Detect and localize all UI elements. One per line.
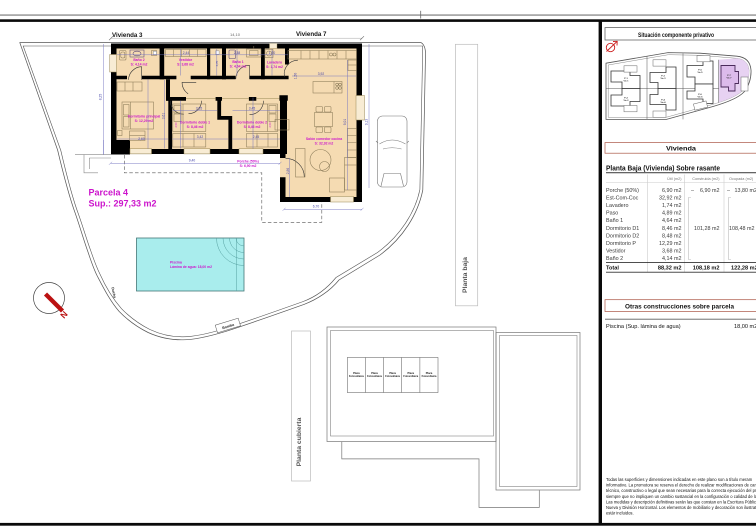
svg-text:Ducha: Ducha — [111, 287, 117, 300]
svg-text:Construida (m2): Construida (m2) — [692, 177, 720, 181]
svg-text:2,38: 2,38 — [234, 51, 241, 55]
svg-text:Viv 4: Viv 4 — [660, 101, 666, 104]
svg-text:– 13,80 m2: – 13,80 m2 — [727, 188, 756, 194]
svg-text:Porche (50%): Porche (50%) — [606, 188, 639, 194]
svg-text:3,42: 3,42 — [197, 135, 204, 139]
svg-text:Planta baja: Planta baja — [462, 257, 469, 293]
svg-text:4,64 m2: 4,64 m2 — [662, 218, 681, 224]
svg-text:S: 3,68 m2: S: 3,68 m2 — [177, 63, 194, 67]
svg-text:2,45: 2,45 — [253, 135, 260, 139]
svg-text:S: 12,29 m2: S: 12,29 m2 — [135, 119, 154, 123]
svg-text:14,10: 14,10 — [230, 32, 241, 37]
svg-text:9,01: 9,01 — [343, 119, 347, 126]
svg-text:Vivienda 7: Vivienda 7 — [296, 31, 327, 38]
svg-text:Vestidor: Vestidor — [179, 58, 193, 62]
svg-text:Viv 1: Viv 1 — [623, 81, 629, 83]
svg-text:Dormitorio D2: Dormitorio D2 — [606, 233, 639, 239]
svg-text:2,60: 2,60 — [138, 137, 145, 141]
svg-text:Todas las superficies y dimens: Todas las superficies y dimensiones indi… — [606, 477, 753, 482]
svg-text:Dormitorio doble 2: Dormitorio doble 2 — [237, 121, 267, 125]
svg-text:18,00 m2: 18,00 m2 — [734, 324, 756, 330]
svg-text:101,28 m2: 101,28 m2 — [694, 226, 719, 232]
svg-text:Baño 2: Baño 2 — [606, 256, 623, 262]
svg-text:1,70: 1,70 — [269, 51, 276, 55]
svg-text:Parcela 4: Parcela 4 — [89, 188, 129, 198]
svg-text:Vivienda 3: Vivienda 3 — [112, 32, 143, 39]
svg-text:108,48 m2: 108,48 m2 — [729, 226, 754, 232]
svg-text:4,14 m2: 4,14 m2 — [662, 256, 681, 262]
svg-text:Las medidas y descripción defi: Las medidas y descripción definitivas se… — [606, 499, 756, 504]
svg-text:108,18 m2: 108,18 m2 — [693, 265, 720, 271]
svg-text:1,74 m2: 1,74 m2 — [662, 203, 681, 209]
svg-text:Útil (m2): Útil (m2) — [667, 176, 682, 181]
svg-text:32,92 m2: 32,92 m2 — [659, 195, 681, 201]
svg-text:Dormitorio principal: Dormitorio principal — [128, 115, 160, 119]
svg-text:Total: Total — [606, 265, 619, 271]
svg-text:técnico, constructivo o legal: técnico, constructivo o legal que sean n… — [606, 488, 756, 493]
svg-text:informativo. La promotora se r: informativo. La promotora se reserva el … — [606, 483, 756, 488]
svg-text:Sup.: 297,33 m2: Sup.: 297,33 m2 — [89, 198, 157, 208]
svg-text:9,40: 9,40 — [189, 159, 196, 163]
svg-text:Viv 5: Viv 5 — [697, 72, 703, 74]
svg-text:Piscina (Sup. lámina de agua): Piscina (Sup. lámina de agua) — [606, 324, 681, 330]
svg-text:Lámina de agua: 18,00 m2: Lámina de agua: 18,00 m2 — [170, 265, 212, 269]
svg-text:S: 8,46 m2: S: 8,46 m2 — [187, 125, 204, 129]
svg-text:Dormitorio D1: Dormitorio D1 — [606, 226, 639, 232]
svg-text:8,46 m2: 8,46 m2 — [662, 226, 681, 232]
svg-text:Salón comedor cocina: Salón comedor cocina — [306, 137, 342, 141]
svg-text:Viv 6: Viv 6 — [697, 97, 703, 99]
svg-text:Vivienda: Vivienda — [666, 146, 697, 153]
svg-text:Fotovoltaica: Fotovoltaica — [422, 375, 437, 378]
svg-text:8,48 m2: 8,48 m2 — [662, 233, 681, 239]
svg-text:Paso: Paso — [606, 211, 618, 217]
svg-text:3,45: 3,45 — [249, 106, 256, 110]
svg-text:88,32 m2: 88,32 m2 — [658, 265, 682, 271]
svg-text:8,25: 8,25 — [99, 94, 103, 101]
svg-text:9,13: 9,13 — [364, 119, 368, 126]
svg-text:Baño 2: Baño 2 — [133, 58, 144, 62]
svg-text:Dormitorio doble 1: Dormitorio doble 1 — [180, 121, 210, 125]
svg-text:S: 4,64 m2: S: 4,64 m2 — [230, 65, 247, 69]
svg-text:6,90 m2: 6,90 m2 — [662, 188, 681, 194]
svg-text:2,50: 2,50 — [268, 122, 272, 128]
svg-text:Lavadero: Lavadero — [606, 203, 628, 209]
svg-text:S: 1,74 m2: S: 1,74 m2 — [266, 65, 283, 69]
svg-text:12,29 m2: 12,29 m2 — [659, 241, 681, 247]
svg-text:4,89 m2: 4,89 m2 — [662, 211, 681, 217]
svg-text:3,85: 3,85 — [196, 106, 203, 110]
svg-text:Fotovoltaica: Fotovoltaica — [349, 375, 364, 378]
svg-text:Porche (50%): Porche (50%) — [237, 160, 258, 164]
svg-text:3,68 m2: 3,68 m2 — [662, 249, 681, 255]
svg-text:N: N — [58, 309, 70, 320]
svg-text:1,50: 1,50 — [293, 73, 297, 80]
svg-text:Viv 2: Viv 2 — [623, 100, 629, 102]
svg-text:Baño 1: Baño 1 — [232, 60, 243, 64]
svg-text:3,92: 3,92 — [318, 72, 325, 76]
svg-text:Viv 3: Viv 3 — [660, 78, 666, 80]
svg-text:2,50: 2,50 — [174, 122, 178, 128]
svg-text:– 6,90 m2: – 6,90 m2 — [691, 188, 719, 194]
svg-text:Planta cubierta: Planta cubierta — [296, 417, 303, 466]
svg-text:Nueva y División Horizontal. L: Nueva y División Horizontal. Los element… — [606, 505, 756, 510]
svg-text:2,44: 2,44 — [183, 51, 190, 55]
svg-text:Dormitorio P: Dormitorio P — [606, 241, 636, 247]
svg-text:estár incluidos.: estár incluidos. — [606, 511, 634, 516]
svg-text:Baño 1: Baño 1 — [606, 218, 623, 224]
svg-text:Planta Baja (Vivienda) Sobre r: Planta Baja (Vivienda) Sobre rasante — [606, 163, 720, 172]
svg-text:Ocupada (m2): Ocupada (m2) — [729, 177, 754, 181]
svg-text:Fotovoltaica: Fotovoltaica — [385, 375, 400, 378]
svg-text:3,61: 3,61 — [162, 113, 166, 120]
svg-text:S: 4,14 m2: S: 4,14 m2 — [131, 63, 148, 67]
svg-text:122,28 m2: 122,28 m2 — [731, 265, 756, 271]
svg-text:siempre que no impliquen un ca: siempre que no impliquen un cambio susta… — [606, 494, 756, 499]
svg-text:2,86: 2,86 — [286, 168, 290, 175]
svg-text:S: 8,46 m2: S: 8,46 m2 — [244, 125, 261, 129]
svg-text:Lavadero: Lavadero — [267, 61, 282, 65]
svg-text:Situación componente privativo: Situación componente privativo — [638, 32, 714, 39]
svg-text:6,70: 6,70 — [313, 205, 320, 209]
svg-text:Viv 7: Viv 7 — [726, 78, 732, 80]
svg-text:0,70: 0,70 — [215, 60, 219, 66]
svg-text:Fotovoltaica: Fotovoltaica — [403, 375, 418, 378]
svg-text:Vestidor: Vestidor — [606, 249, 626, 255]
svg-text:S: 6,90 m2: S: 6,90 m2 — [240, 164, 257, 168]
svg-text:Piscina: Piscina — [170, 261, 182, 265]
svg-text:Est-Com-Coc: Est-Com-Coc — [606, 195, 639, 201]
svg-text:Otras construcciones sobre par: Otras construcciones sobre parcela — [625, 303, 735, 310]
svg-text:S: 32,92 m2: S: 32,92 m2 — [315, 142, 334, 146]
svg-text:Fotovoltaica: Fotovoltaica — [367, 375, 382, 378]
